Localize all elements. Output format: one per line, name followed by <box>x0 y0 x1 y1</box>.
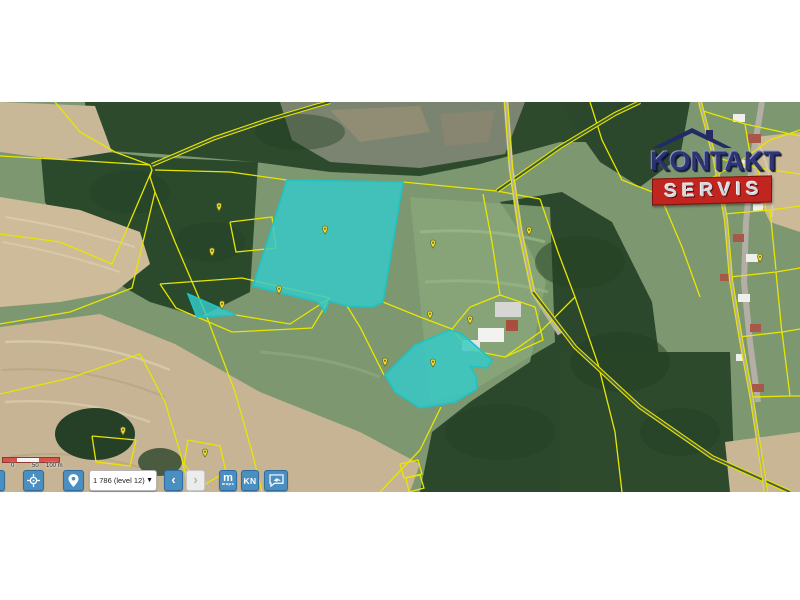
parcel-boundary-line <box>739 329 800 337</box>
parcel-marker-pin[interactable] <box>431 240 436 248</box>
location-pin-icon <box>68 474 79 487</box>
boundary-double-line <box>152 102 330 165</box>
parcel-boundary-line <box>55 102 150 165</box>
parcel-boundary-line <box>155 192 262 492</box>
parcel-boundary-line <box>770 210 776 270</box>
chevron-right-icon: › <box>193 473 197 486</box>
parcel-boundary-line <box>347 306 384 375</box>
parcel-boundary-line <box>776 272 782 334</box>
map-canvas[interactable] <box>0 102 800 492</box>
parcel-boundary-line <box>0 192 155 324</box>
parcel-marker-pin[interactable] <box>203 449 208 457</box>
parcel-boundary-line <box>406 475 424 492</box>
speech-bubble-arrow-icon <box>269 474 284 487</box>
map-application: { "watermark": { "line1": "KONTAKT", "li… <box>0 0 800 600</box>
cadastral-overlay <box>0 102 800 492</box>
parcel-marker-pin[interactable] <box>121 427 126 435</box>
parcel-boundary-line <box>700 110 800 136</box>
parcel-boundary-line <box>92 436 136 466</box>
parcel-boundary-line <box>730 268 800 277</box>
cadastre-kn-button[interactable]: KN <box>241 470 259 491</box>
scalebar-segment <box>3 458 17 462</box>
parcel-marker-pin[interactable] <box>758 254 763 262</box>
boundary-double-line <box>497 102 640 191</box>
parcel-boundary-line <box>540 199 622 492</box>
parcel-boundary-line <box>0 170 152 264</box>
parcel-boundary-line <box>782 332 790 396</box>
map-toolbar: 1 786 (level 12) ▼ ‹ › m maps KN <box>0 469 288 492</box>
parcel-boundary-line <box>483 194 500 295</box>
chevron-left-icon: ‹ <box>171 473 175 486</box>
feedback-button[interactable] <box>264 470 288 491</box>
clipped-edge-button[interactable] <box>0 470 5 491</box>
crosshair-icon <box>27 474 40 487</box>
parcel-boundary-line <box>383 302 452 329</box>
parcel-boundary-line <box>0 156 150 165</box>
parcel-boundary-line <box>150 165 155 192</box>
highlighted-parcel-south[interactable] <box>385 330 492 408</box>
scalebar-segment <box>17 458 39 462</box>
marker-button[interactable] <box>63 470 84 491</box>
parcel-marker-pin[interactable] <box>428 311 433 319</box>
chevron-down-icon: ▼ <box>146 477 153 484</box>
parcel-boundary-line <box>660 195 700 297</box>
parcel-marker-pin[interactable] <box>468 316 473 324</box>
parcel-boundary-line <box>758 168 766 210</box>
parcel-boundary-line <box>750 396 800 397</box>
parcel-boundary-line <box>713 157 800 174</box>
highlighted-parcel-triangle[interactable] <box>188 294 236 317</box>
parcel-boundary-line <box>0 354 140 394</box>
marushka-maps-button[interactable]: m maps <box>219 470 237 491</box>
kn-label: KN <box>244 476 257 486</box>
parcel-boundary-line <box>590 102 800 195</box>
highlighted-parcel-large[interactable] <box>253 180 403 312</box>
parcel-marker-pin[interactable] <box>217 203 222 211</box>
zoom-level-value: 1 786 (level 12) <box>93 476 146 485</box>
history-back-button[interactable]: ‹ <box>164 470 183 491</box>
history-forward-button[interactable]: › <box>186 470 205 491</box>
scalebar-segment <box>39 458 59 462</box>
parcel-boundary-line <box>155 170 287 180</box>
parcel-marker-pin[interactable] <box>527 227 532 235</box>
parcel-marker-pin[interactable] <box>383 358 388 366</box>
parcel-boundary-line <box>380 407 441 492</box>
parcel-boundary-line <box>403 182 540 199</box>
locate-button[interactable] <box>23 470 44 491</box>
parcel-marker-pin[interactable] <box>210 248 215 256</box>
boundary-double-line-core <box>700 102 766 492</box>
m-maps-icon: m maps <box>222 475 234 487</box>
zoom-level-dropdown[interactable]: 1 786 (level 12) ▼ <box>89 470 157 491</box>
parcel-boundary-line <box>745 124 752 166</box>
parcel-boundary-line <box>724 206 800 214</box>
